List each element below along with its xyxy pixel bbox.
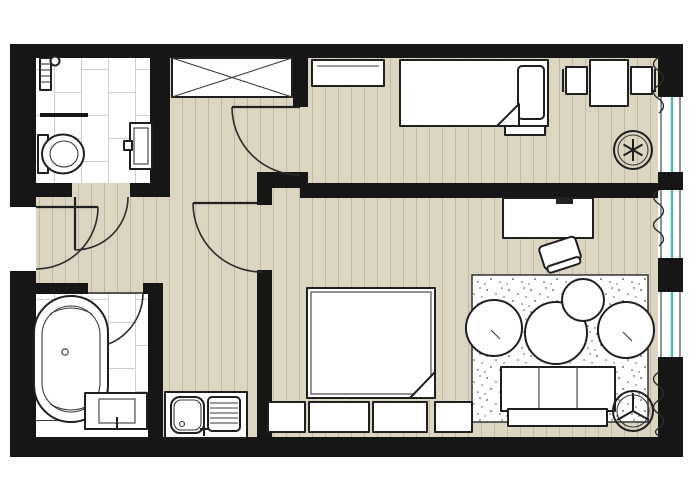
wall-left-upper [10,44,36,207]
wall-bottom [10,437,683,457]
double-bed [307,288,435,398]
dresser [312,60,384,86]
bedside-bench [505,126,545,135]
window-1 [658,97,683,172]
wall-right-3 [658,258,683,292]
wall-bathroom-upper-right-side [150,44,170,197]
floor-plan-page [0,0,700,478]
laptop [556,198,573,204]
drainboard [208,397,240,431]
pillow [518,66,544,119]
chair-right [631,67,652,94]
wall-bathroom-lower-right-side [148,283,163,437]
side-table [562,279,604,321]
wall-bedroom-upper-left [293,58,308,107]
kitchen-sink-unit [165,392,247,438]
nightstand-right [435,402,472,432]
wall-bathroom-lower-top-a [10,283,88,294]
dining-table [590,60,628,106]
partition-stub [40,113,88,117]
wall-left-lower [10,271,36,457]
window-3 [658,292,683,357]
wardrobe [172,58,292,97]
wall-bathroom-upper-bottom-b [130,183,170,197]
desk [503,198,593,238]
wall-right-1 [658,44,683,97]
wall-bathroom-upper-bottom-a [10,183,72,197]
sofa [501,367,615,426]
pillow-left [309,402,369,432]
pillow-right [373,402,427,432]
wall-mid-horizontal [300,183,662,198]
vanity-basin [85,393,147,429]
single-bed [400,60,548,135]
armchair-right [598,302,654,358]
toilet [38,135,84,174]
window-2 [658,190,683,258]
nightstand-left [268,402,305,432]
chair-left [566,67,587,94]
wall-top [10,44,683,58]
floor-plan-drawing [0,0,700,478]
windows [658,97,683,357]
armchair-left [466,300,522,356]
wall-right-4 [658,357,683,457]
